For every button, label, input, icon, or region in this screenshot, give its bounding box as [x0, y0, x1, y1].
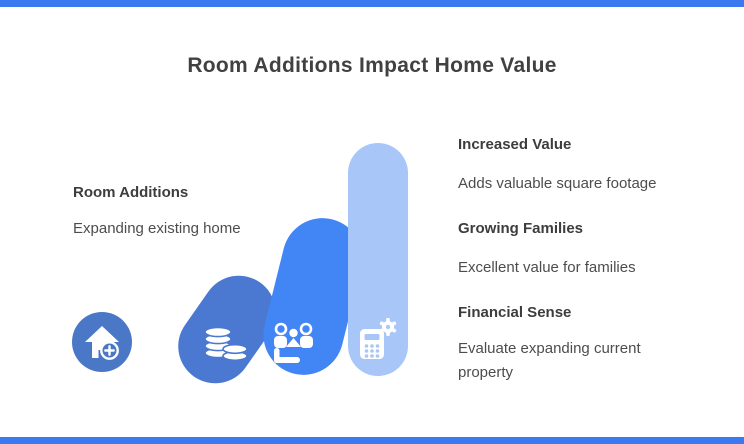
- infographic-canvas: Room Additions Impact Home Value Room Ad…: [0, 0, 744, 444]
- right-block-description-financial-sense: Evaluate expanding current property: [458, 337, 658, 385]
- left-block-heading: Room Additions: [73, 184, 188, 201]
- calculator-gear-icon: [352, 314, 402, 364]
- page-title: Room Additions Impact Home Value: [0, 54, 744, 78]
- house-plus-badge: [72, 312, 132, 372]
- coins-icon: [204, 320, 250, 366]
- right-block-heading-financial-sense: Financial Sense: [458, 304, 571, 321]
- house-plus-icon: [83, 323, 121, 361]
- family-icon: [271, 320, 315, 366]
- right-block-heading-growing-families: Growing Families: [458, 220, 583, 237]
- right-block-description-increased-value: Adds valuable square footage: [458, 172, 656, 196]
- left-block-description: Expanding existing home: [73, 220, 241, 237]
- top-accent-bar: [0, 0, 744, 7]
- right-block-description-growing-families: Excellent value for families: [458, 256, 636, 280]
- right-block-heading-increased-value: Increased Value: [458, 136, 571, 153]
- bottom-accent-bar: [0, 437, 744, 444]
